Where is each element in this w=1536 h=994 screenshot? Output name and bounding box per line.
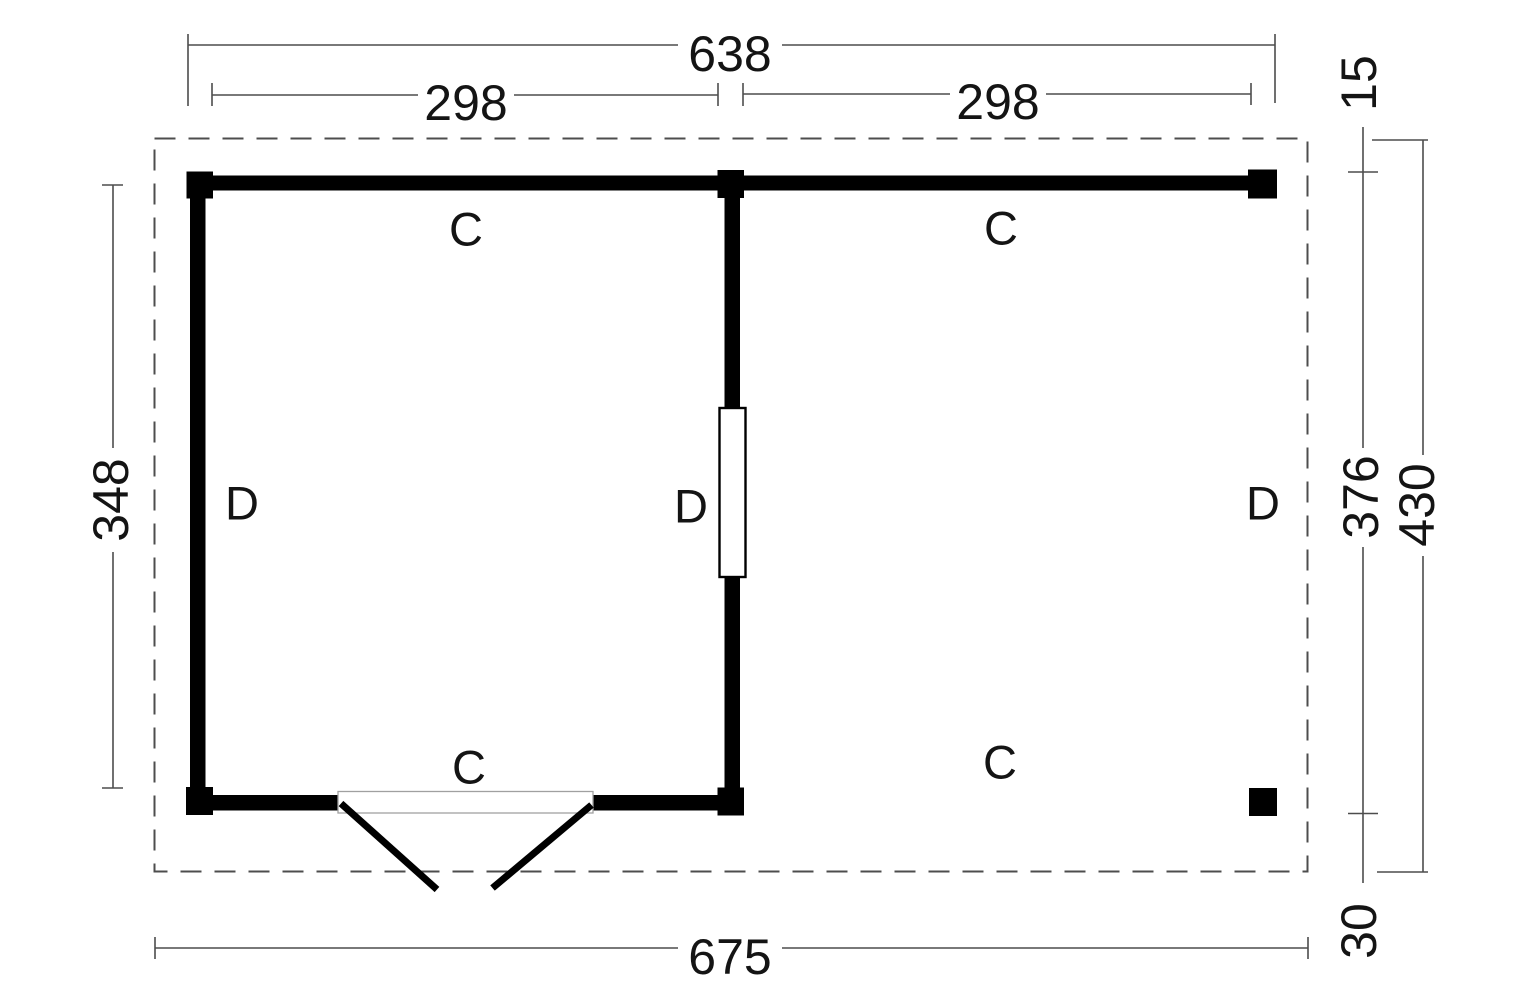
wall-type-labels: C C C C D D D — [225, 202, 1280, 794]
double-door — [338, 792, 593, 890]
label-c-bottom-left: C — [452, 741, 486, 794]
dimension-value-30: 30 — [1331, 903, 1387, 959]
wall-middle-upper — [725, 190, 741, 410]
label-c-bottom-right: C — [983, 736, 1017, 789]
dimension-value-15: 15 — [1331, 55, 1387, 111]
dimension-value-298-right: 298 — [956, 74, 1039, 130]
post-bottom-left — [186, 787, 213, 815]
dimension-value-348: 348 — [83, 458, 139, 541]
dimension-left-height: 348 — [83, 185, 139, 788]
dimension-top-right-bay: 298 — [743, 74, 1251, 130]
post-top-middle — [718, 170, 745, 198]
post-bottom-middle — [718, 788, 745, 816]
double-door-panel — [338, 792, 593, 814]
dimension-value-638: 638 — [688, 26, 771, 82]
dimension-value-298-left: 298 — [424, 75, 507, 131]
middle-wall-window — [720, 408, 746, 577]
label-c-top-right: C — [984, 202, 1018, 255]
dimension-right-wall: 15 376 30 — [1331, 55, 1389, 959]
post-top-left — [187, 172, 214, 199]
wall-bottom-left-segment — [200, 795, 341, 811]
door-leaf-left — [341, 804, 437, 890]
dimension-top-left-bay: 298 — [212, 75, 718, 131]
label-d-middle: D — [674, 480, 708, 533]
dimension-value-430: 430 — [1389, 463, 1445, 546]
floor-plan-svg: 638 298 298 348 15 376 30 — [0, 0, 1536, 994]
dimension-bottom-total: 675 — [155, 929, 1308, 985]
wall-middle-lower — [725, 575, 741, 793]
label-c-top-left: C — [449, 203, 483, 256]
wall-bottom-right-segment — [591, 795, 727, 811]
post-bottom-right — [1249, 788, 1277, 816]
dimension-value-376: 376 — [1333, 455, 1389, 538]
door-leaf-right — [493, 805, 592, 888]
floor-plan-canvas: 638 298 298 348 15 376 30 — [0, 0, 1536, 994]
wall-left — [190, 185, 206, 800]
label-d-right: D — [1246, 477, 1280, 530]
post-top-right — [1248, 170, 1277, 199]
dimension-value-675: 675 — [688, 929, 771, 985]
label-d-left: D — [225, 477, 259, 530]
